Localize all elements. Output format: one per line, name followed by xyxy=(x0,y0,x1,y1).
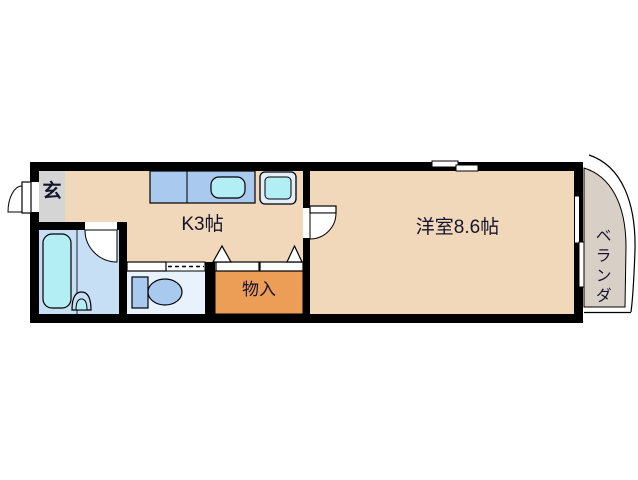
toilet-sliding-door-panel xyxy=(127,262,166,271)
bathroom-door-opening xyxy=(85,222,117,230)
kitchen-sink xyxy=(211,177,245,198)
room-swing-door-panel xyxy=(310,206,336,213)
wall-top xyxy=(30,162,583,171)
kitchen-label: K3帖 xyxy=(145,215,260,236)
toilet-bowl xyxy=(148,279,182,305)
sliding-window-top-left-pane xyxy=(432,161,458,167)
wall-bath-right xyxy=(119,222,127,314)
wall-bottom xyxy=(30,314,583,323)
sliding-window-veranda-upper-pane xyxy=(575,196,580,243)
wall-kitchen-room-lower xyxy=(303,238,310,314)
entrance-label: 玄 xyxy=(39,182,65,203)
sliding-window-top-right-pane xyxy=(456,165,478,171)
floorplan-drawing xyxy=(0,0,638,480)
floorplan-canvas: 玄 K3帖 洋室8.6帖 物入 ベランダ xyxy=(0,0,638,480)
storage-label: 物入 xyxy=(215,281,303,300)
toilet-tank xyxy=(132,277,148,308)
bathtub xyxy=(43,234,71,308)
closet-door-panel-left xyxy=(216,262,259,271)
entrance-swing-door-arc xyxy=(8,186,22,212)
bath-washbasin-inner xyxy=(76,299,87,310)
entrance-swing-door-panel xyxy=(22,182,31,213)
washer-pan-inner xyxy=(265,177,291,199)
closet-door-panel-right xyxy=(260,262,303,271)
room-door-opening xyxy=(303,208,310,238)
western-room-label: 洋室8.6帖 xyxy=(385,218,530,239)
veranda-label: ベランダ xyxy=(592,219,610,315)
wall-toilet-storage xyxy=(205,262,215,314)
sliding-window-veranda-lower-pane xyxy=(579,242,584,287)
wall-kitchen-room-upper xyxy=(303,171,310,208)
